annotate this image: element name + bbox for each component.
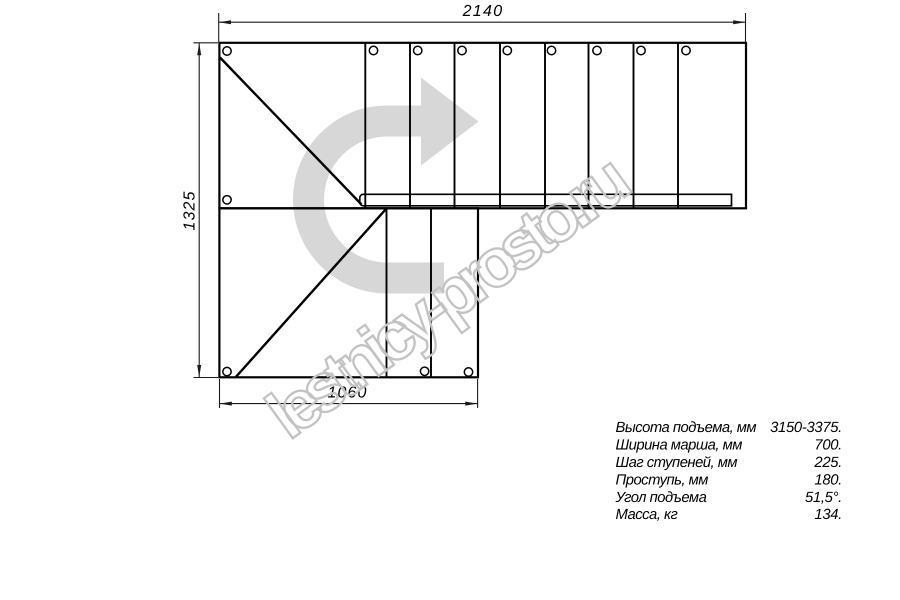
svg-text:2140: 2140 [462,3,504,20]
svg-text:51,5°.: 51,5°. [805,490,842,506]
svg-text:3150-3375.: 3150-3375. [770,420,842,436]
svg-text:Угол подъема: Угол подъема [615,490,707,506]
svg-text:134.: 134. [814,507,842,523]
svg-text:1325: 1325 [182,191,199,231]
svg-text:180.: 180. [814,472,842,488]
svg-text:Ширина марша, мм: Ширина марша, мм [616,438,743,454]
svg-text:Проступь, мм: Проступь, мм [616,472,709,488]
svg-text:Высота подъема, мм: Высота подъема, мм [616,420,757,436]
svg-text:Масса, кг: Масса, кг [616,507,678,523]
svg-text:700.: 700. [814,438,842,454]
svg-text:225.: 225. [813,455,842,471]
svg-text:Шаг ступеней, мм: Шаг ступеней, мм [616,455,738,471]
